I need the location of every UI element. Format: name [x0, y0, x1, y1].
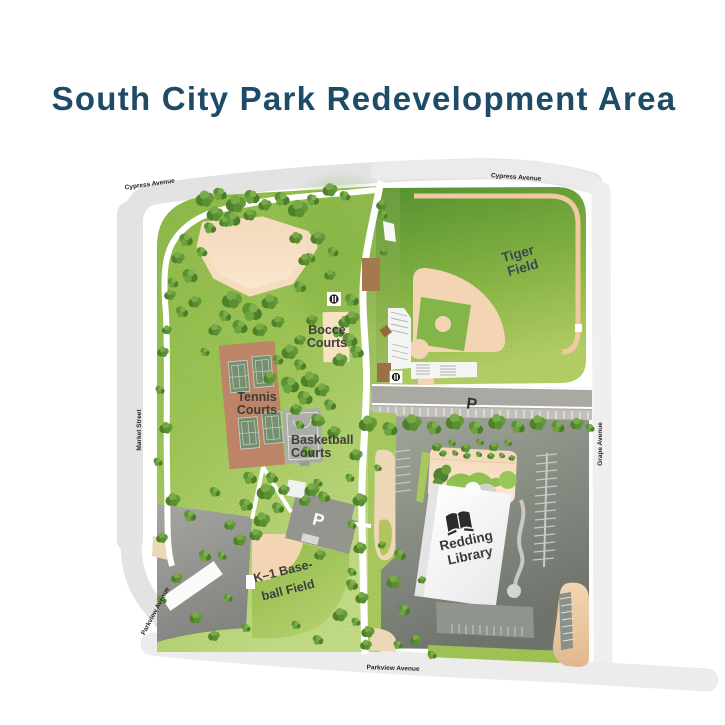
- svg-text:Grape Avenue: Grape Avenue: [597, 422, 604, 466]
- svg-text:Tennis: Tennis: [237, 390, 276, 404]
- svg-text:Basketball: Basketball: [291, 433, 354, 447]
- svg-text:Market Street: Market Street: [136, 409, 143, 451]
- svg-text:Courts: Courts: [291, 446, 331, 460]
- svg-text:Courts: Courts: [307, 336, 347, 350]
- svg-text:South City Park Redevelopment: South City Park Redevelopment Area: [52, 80, 677, 117]
- svg-text:Bocce: Bocce: [308, 323, 346, 337]
- svg-text:Courts: Courts: [237, 403, 277, 417]
